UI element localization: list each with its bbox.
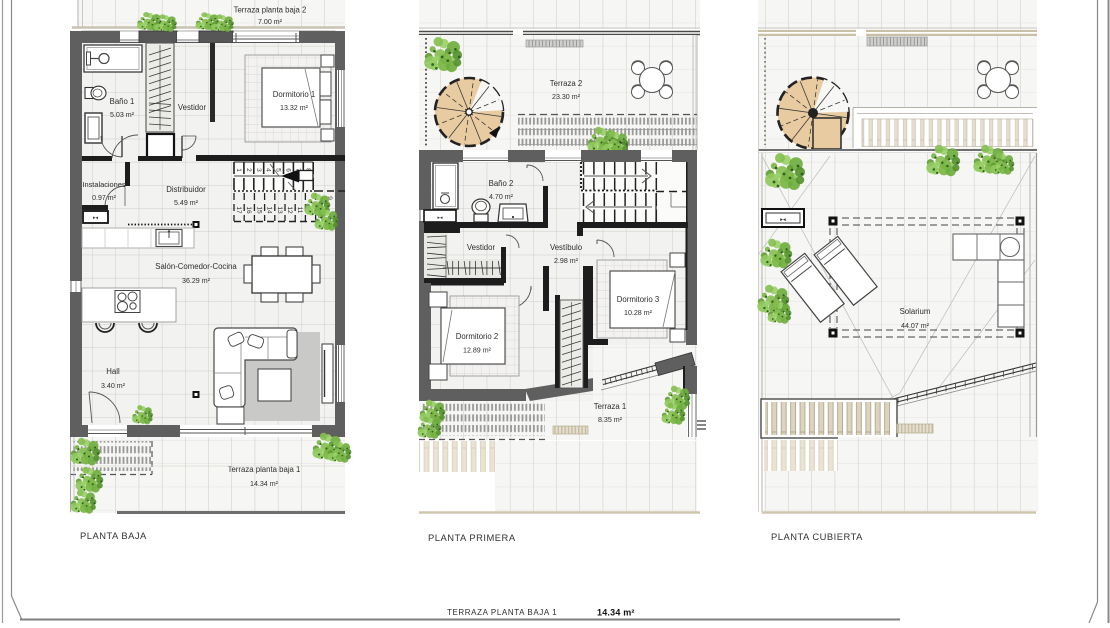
svg-text:36.29 m²: 36.29 m² (182, 277, 211, 285)
svg-text:7.00 m²: 7.00 m² (258, 18, 283, 26)
svg-text:2: 2 (245, 168, 252, 172)
svg-text:16: 16 (245, 206, 252, 214)
svg-text:13.32 m²: 13.32 m² (280, 104, 309, 112)
svg-text:5.49 m²: 5.49 m² (174, 199, 199, 207)
svg-text:Solarium: Solarium (900, 307, 931, 316)
svg-text:17: 17 (235, 206, 242, 214)
svg-text:4: 4 (265, 168, 272, 172)
svg-text:0.97 m²: 0.97 m² (92, 195, 116, 202)
svg-text:1: 1 (235, 168, 242, 172)
svg-text:14: 14 (266, 206, 273, 214)
svg-text:Terraza planta baja 2: Terraza planta baja 2 (234, 6, 307, 15)
svg-text:14.34 m²: 14.34 m² (597, 608, 635, 618)
svg-text:23.30 m²: 23.30 m² (552, 93, 581, 101)
svg-text:12: 12 (286, 206, 293, 214)
svg-text:Dormitorio 1: Dormitorio 1 (273, 90, 315, 99)
svg-text:11: 11 (296, 207, 303, 214)
svg-text:▸◂: ▸◂ (780, 217, 786, 223)
svg-text:Terraza 1: Terraza 1 (594, 402, 627, 411)
svg-text:8.35 m²: 8.35 m² (598, 416, 623, 424)
svg-text:10.28 m²: 10.28 m² (624, 309, 653, 317)
svg-text:3: 3 (255, 168, 262, 172)
svg-text:12.89 m²: 12.89 m² (463, 347, 492, 355)
svg-text:Dormitorio 2: Dormitorio 2 (456, 332, 498, 341)
svg-text:Vestidor: Vestidor (178, 103, 207, 112)
svg-text:Baño 2: Baño 2 (489, 179, 514, 188)
svg-text:3.40 m²: 3.40 m² (101, 382, 126, 390)
svg-text:5.03 m²: 5.03 m² (110, 111, 135, 119)
svg-text:Baño 1: Baño 1 (110, 97, 135, 106)
svg-text:14.34 m²: 14.34 m² (250, 480, 279, 488)
svg-text:Salón-Comedor-Cocina: Salón-Comedor-Cocina (155, 262, 237, 271)
svg-text:Vestíbulo: Vestíbulo (550, 243, 583, 252)
svg-text:15: 15 (255, 206, 262, 214)
svg-text:Hall: Hall (106, 367, 120, 376)
svg-text:PLANTA CUBIERTA: PLANTA CUBIERTA (771, 531, 863, 542)
svg-text:▸◂: ▸◂ (93, 215, 99, 221)
svg-text:2.98 m²: 2.98 m² (554, 257, 579, 265)
svg-text:TERRAZA PLANTA BAJA 1: TERRAZA PLANTA BAJA 1 (447, 608, 557, 617)
svg-text:6: 6 (285, 168, 292, 172)
svg-text:4.70 m²: 4.70 m² (489, 193, 514, 201)
svg-text:Dormitorio 3: Dormitorio 3 (617, 295, 659, 304)
svg-text:Instalaciones: Instalaciones (82, 180, 125, 189)
svg-text:13: 13 (276, 206, 283, 214)
svg-text:PLANTA PRIMERA: PLANTA PRIMERA (428, 532, 516, 543)
svg-text:▸◂: ▸◂ (437, 215, 443, 221)
svg-text:PLANTA BAJA: PLANTA BAJA (80, 530, 147, 541)
svg-text:Vestidor: Vestidor (467, 243, 496, 252)
svg-text:Terraza 2: Terraza 2 (550, 79, 583, 88)
svg-text:Distribuidor: Distribuidor (166, 185, 206, 194)
svg-text:44.07 m²: 44.07 m² (901, 322, 930, 330)
